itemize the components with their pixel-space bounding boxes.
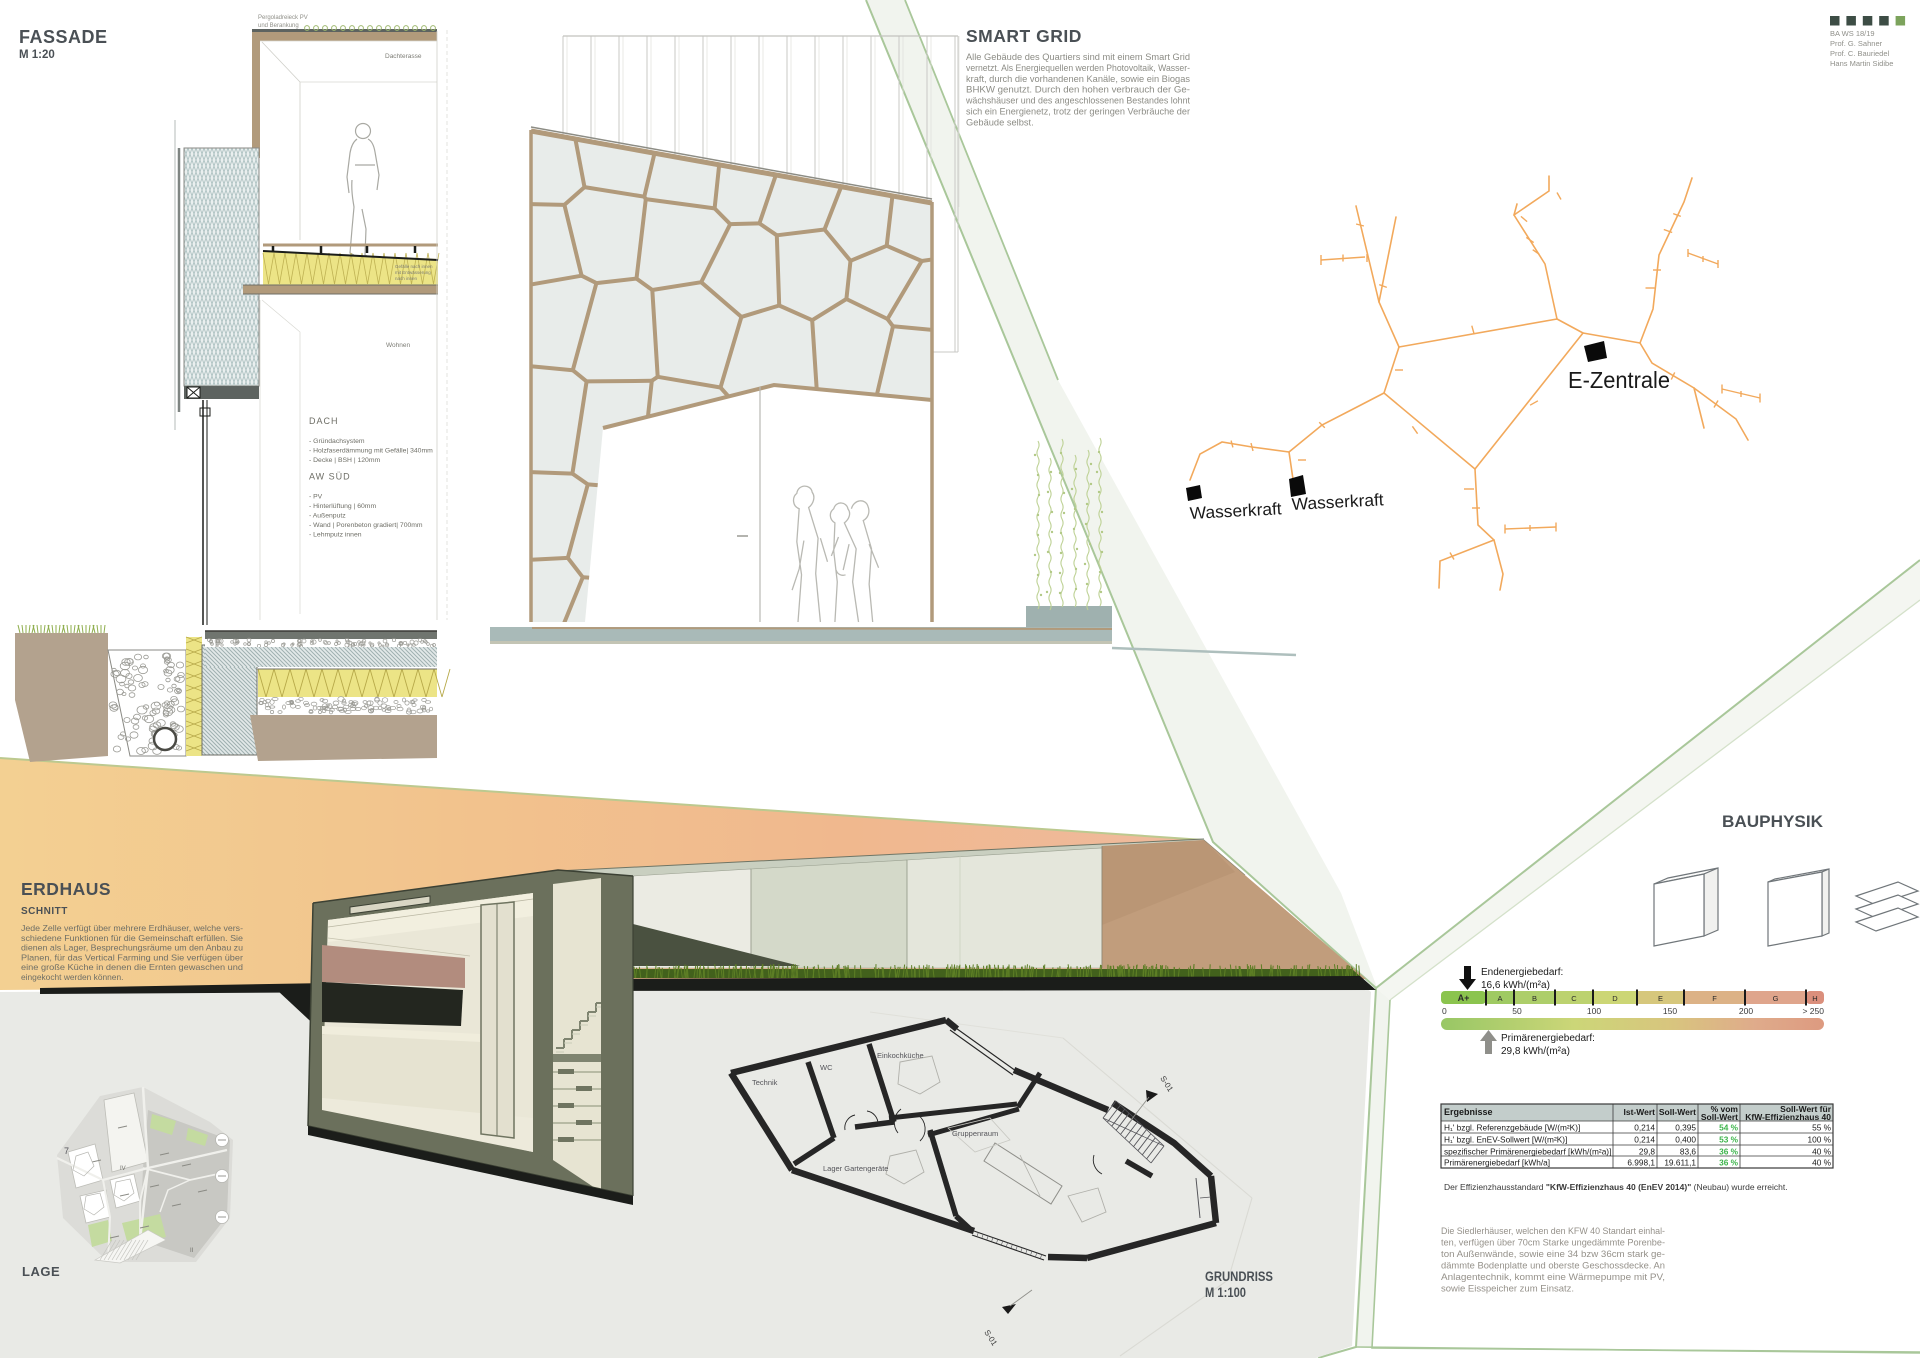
svg-text:II: II xyxy=(190,1248,194,1254)
svg-text:16,6 kWh/(m²a): 16,6 kWh/(m²a) xyxy=(1481,980,1550,991)
svg-text:19.611,1: 19.611,1 xyxy=(1664,1157,1696,1167)
svg-text:Dachterasse: Dachterasse xyxy=(385,53,422,60)
svg-text:- Holzfaserdämmung mit Gefälle: - Holzfaserdämmung mit Gefälle| 340mm xyxy=(309,448,433,455)
svg-text:6.998,1: 6.998,1 xyxy=(1627,1157,1655,1167)
svg-text:ton Außenwände, sowie eine 34: ton Außenwände, sowie eine 34 bzw 36cm s… xyxy=(1441,1249,1665,1260)
svg-text:A+: A+ xyxy=(1458,993,1470,1003)
svg-text:Anlagentechnik, kommt eine Wär: Anlagentechnik, kommt eine Wärmepumpe mi… xyxy=(1441,1272,1665,1283)
svg-text:GRUNDRISS: GRUNDRISS xyxy=(1205,1269,1273,1284)
svg-text:Jede Zelle verfügt über mehrer: Jede Zelle verfügt über mehrere Erdhäuse… xyxy=(21,923,243,933)
svg-text:BA WS 18/19: BA WS 18/19 xyxy=(1830,29,1875,38)
svg-text:Prof. C. Bauriedel: Prof. C. Bauriedel xyxy=(1830,49,1890,58)
svg-text:vernetzt. Als Energiequellen w: vernetzt. Als Energiequellen werden Phot… xyxy=(966,63,1190,73)
svg-text:29,8: 29,8 xyxy=(1639,1146,1656,1156)
svg-text:83,6: 83,6 xyxy=(1680,1146,1697,1156)
svg-text:IV: IV xyxy=(120,1166,126,1172)
svg-text:BHKW genutzt. Durch den hohen: BHKW genutzt. Durch den hohen verbrauch … xyxy=(966,85,1190,95)
svg-text:55 %: 55 % xyxy=(1812,1122,1832,1132)
svg-text:Primärenergiebedarf [kWh/a]: Primärenergiebedarf [kWh/a] xyxy=(1444,1157,1550,1167)
svg-text:29,8 kWh/(m²a): 29,8 kWh/(m²a) xyxy=(1501,1046,1570,1057)
svg-text:> 250: > 250 xyxy=(1802,1006,1824,1016)
svg-text:SMART GRID: SMART GRID xyxy=(966,26,1082,46)
svg-text:H₁' bzgl. EnEV-Sollwert [W/(m²: H₁' bzgl. EnEV-Sollwert [W/(m²K)] xyxy=(1444,1134,1567,1144)
svg-text:- Hinterlüftung | 60mm: - Hinterlüftung | 60mm xyxy=(309,503,376,510)
svg-text:Gruppenraum: Gruppenraum xyxy=(952,1129,998,1138)
svg-text:E: E xyxy=(1658,994,1663,1003)
svg-text:H: H xyxy=(1812,994,1817,1003)
svg-text:- Gründachsystem: - Gründachsystem xyxy=(309,438,365,445)
svg-text:C: C xyxy=(1571,994,1577,1003)
svg-text:Alle Gebäude des Quartiers sin: Alle Gebäude des Quartiers sind mit eine… xyxy=(966,52,1190,62)
svg-text:mit Entwässerung: mit Entwässerung xyxy=(395,270,431,275)
svg-text:50: 50 xyxy=(1512,1006,1522,1016)
svg-text:40 %: 40 % xyxy=(1812,1146,1832,1156)
svg-text:0,214: 0,214 xyxy=(1634,1134,1655,1144)
svg-text:KfW-Effizienzhaus 40: KfW-Effizienzhaus 40 xyxy=(1745,1112,1831,1122)
svg-text:dämmte Bodenplatte und oberste: dämmte Bodenplatte und oberste Geschossd… xyxy=(1441,1261,1665,1272)
svg-text:0,395: 0,395 xyxy=(1675,1122,1696,1132)
svg-text:WC: WC xyxy=(820,1063,833,1072)
svg-text:B: B xyxy=(1532,994,1537,1003)
svg-text:D: D xyxy=(1612,994,1618,1003)
svg-text:M 1:20: M 1:20 xyxy=(19,49,55,61)
svg-text:ten, verfügen über 70cm Starke: ten, verfügen über 70cm Starke ungedämmt… xyxy=(1441,1238,1665,1249)
svg-text:- Lehmputz innen: - Lehmputz innen xyxy=(309,532,362,539)
svg-text:E-Zentrale: E-Zentrale xyxy=(1568,367,1670,393)
svg-text:wächshäuser und des angeschlos: wächshäuser und des angeschlossenen Best… xyxy=(965,96,1190,106)
svg-text:54 %: 54 % xyxy=(1719,1122,1739,1132)
svg-text:eingekocht werden können.: eingekocht werden können. xyxy=(21,972,123,982)
svg-text:200: 200 xyxy=(1739,1006,1753,1016)
svg-text:nach innen: nach innen xyxy=(395,276,418,281)
svg-text:150: 150 xyxy=(1663,1006,1677,1016)
svg-text:Einkochküche: Einkochküche xyxy=(877,1051,924,1060)
svg-text:Soll-Wert: Soll-Wert xyxy=(1659,1107,1696,1117)
svg-text:Soll-Wert: Soll-Wert xyxy=(1701,1112,1738,1122)
svg-text:schiedene Funktionen für die G: schiedene Funktionen für die Gemeinschaf… xyxy=(21,933,243,943)
svg-text:LAGE: LAGE xyxy=(22,1264,60,1279)
svg-text:Die Siedlerhäuser, welchen den: Die Siedlerhäuser, welchen den KFW 40 St… xyxy=(1441,1226,1665,1237)
svg-text:H₁' bzgl. Referenzgebäude [W/(: H₁' bzgl. Referenzgebäude [W/(m²K)] xyxy=(1444,1122,1580,1132)
svg-text:Gefälle nach innen: Gefälle nach innen xyxy=(395,264,433,269)
svg-text:BAUPHYSIK: BAUPHYSIK xyxy=(1722,812,1824,831)
svg-text:sich ein Energienetz, trotz de: sich ein Energienetz, trotz der geringen… xyxy=(966,107,1190,117)
svg-text:100: 100 xyxy=(1587,1006,1601,1016)
svg-text:Technik: Technik xyxy=(752,1078,778,1087)
svg-text:spezifischer Primärenergiebeda: spezifischer Primärenergiebedarf [kWh/(m… xyxy=(1444,1146,1611,1156)
svg-text:Wohnen: Wohnen xyxy=(386,342,410,349)
svg-text:und Berankung: und Berankung xyxy=(258,23,299,29)
svg-text:Pergoladreieck PV: Pergoladreieck PV xyxy=(258,15,308,21)
svg-text:- Decke | BSH | 120mm: - Decke | BSH | 120mm xyxy=(309,457,380,464)
svg-text:Ergebnisse: Ergebnisse xyxy=(1444,1107,1493,1117)
svg-text:ERDHAUS: ERDHAUS xyxy=(21,879,111,899)
svg-text:Lager Gartengeräte: Lager Gartengeräte xyxy=(823,1164,888,1173)
svg-text:Der Effizienzhausstandard "KfW: Der Effizienzhausstandard "KfW-Effizienz… xyxy=(1444,1182,1788,1192)
svg-text:Gebäude selbst.: Gebäude selbst. xyxy=(966,117,1034,127)
svg-text:FASSADE: FASSADE xyxy=(19,27,108,47)
svg-text:- Wand | Porenbeton gradiert: - Wand | Porenbeton gradiert| 700mm xyxy=(309,522,423,529)
svg-text:40 %: 40 % xyxy=(1812,1157,1832,1167)
svg-text:36 %: 36 % xyxy=(1719,1157,1739,1167)
svg-text:F: F xyxy=(1712,994,1717,1003)
svg-text:Primärenergiebedarf:: Primärenergiebedarf: xyxy=(1501,1033,1595,1044)
svg-text:M 1:100: M 1:100 xyxy=(1205,1285,1246,1300)
svg-text:100 %: 100 % xyxy=(1807,1134,1831,1144)
svg-text:Hans Martin Sidibe: Hans Martin Sidibe xyxy=(1830,59,1893,68)
svg-text:kraft, durch die vorhandenen K: kraft, durch die vorhandenen Kanäle, sow… xyxy=(966,74,1190,84)
svg-text:DACH: DACH xyxy=(309,416,339,426)
svg-text:- Außenputz: - Außenputz xyxy=(309,513,346,520)
svg-text:Prof. G. Sahner: Prof. G. Sahner xyxy=(1830,39,1883,48)
svg-text:Ist-Wert: Ist-Wert xyxy=(1624,1107,1656,1117)
svg-text:G: G xyxy=(1773,994,1779,1003)
svg-text:Endenergiebedarf:: Endenergiebedarf: xyxy=(1481,967,1563,978)
svg-text:AW SÜD: AW SÜD xyxy=(309,472,351,482)
svg-text:SCHNITT: SCHNITT xyxy=(21,906,68,917)
svg-text:dienen als Lager, Besprechungs: dienen als Lager, Besprechungsräume um d… xyxy=(21,943,243,953)
svg-text:36 %: 36 % xyxy=(1719,1146,1739,1156)
svg-text:7: 7 xyxy=(64,1146,69,1156)
svg-text:sowie Eisspeicher zum Einsatz.: sowie Eisspeicher zum Einsatz. xyxy=(1441,1284,1574,1295)
svg-text:0,400: 0,400 xyxy=(1675,1134,1696,1144)
svg-text:eine große Küche in denen die: eine große Küche in denen die Ernten gew… xyxy=(21,962,243,972)
svg-text:53 %: 53 % xyxy=(1719,1134,1739,1144)
svg-text:- PV: - PV xyxy=(309,494,323,501)
svg-text:A: A xyxy=(1497,994,1502,1003)
svg-text:0,214: 0,214 xyxy=(1634,1122,1655,1132)
svg-text:0: 0 xyxy=(1442,1006,1447,1016)
svg-text:Planen, für das Vertical Farmi: Planen, für das Vertical Farming und Sie… xyxy=(21,952,243,962)
